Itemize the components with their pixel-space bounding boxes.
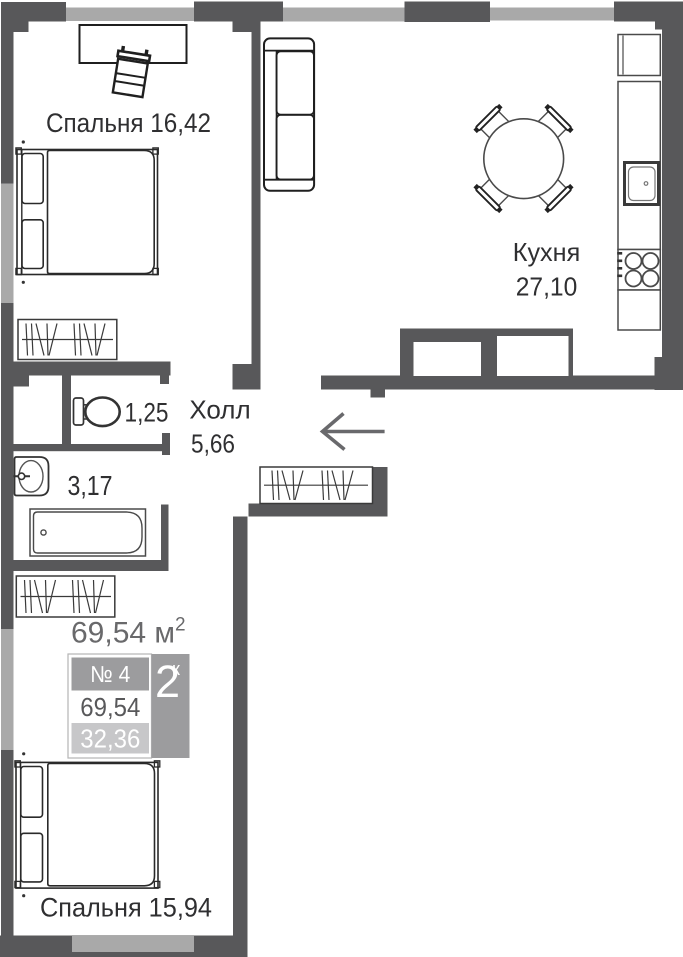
svg-text:69,54 м2: 69,54 м2 [71,615,186,650]
svg-text:Холл: Холл [189,395,250,425]
svg-text:Кухня: Кухня [513,237,581,267]
svg-text:1,25: 1,25 [125,398,169,428]
svg-text:5,66: 5,66 [191,429,235,459]
svg-text:69,54: 69,54 [80,692,140,722]
svg-text:Спальня 15,94: Спальня 15,94 [40,893,212,923]
svg-text:Спальня 16,42: Спальня 16,42 [46,108,211,138]
svg-text:27,10: 27,10 [516,272,578,302]
svg-text:32,36: 32,36 [80,724,140,754]
svg-text:к: к [172,659,180,679]
svg-text:3,17: 3,17 [68,470,113,501]
svg-text:№ 4: № 4 [90,661,130,687]
